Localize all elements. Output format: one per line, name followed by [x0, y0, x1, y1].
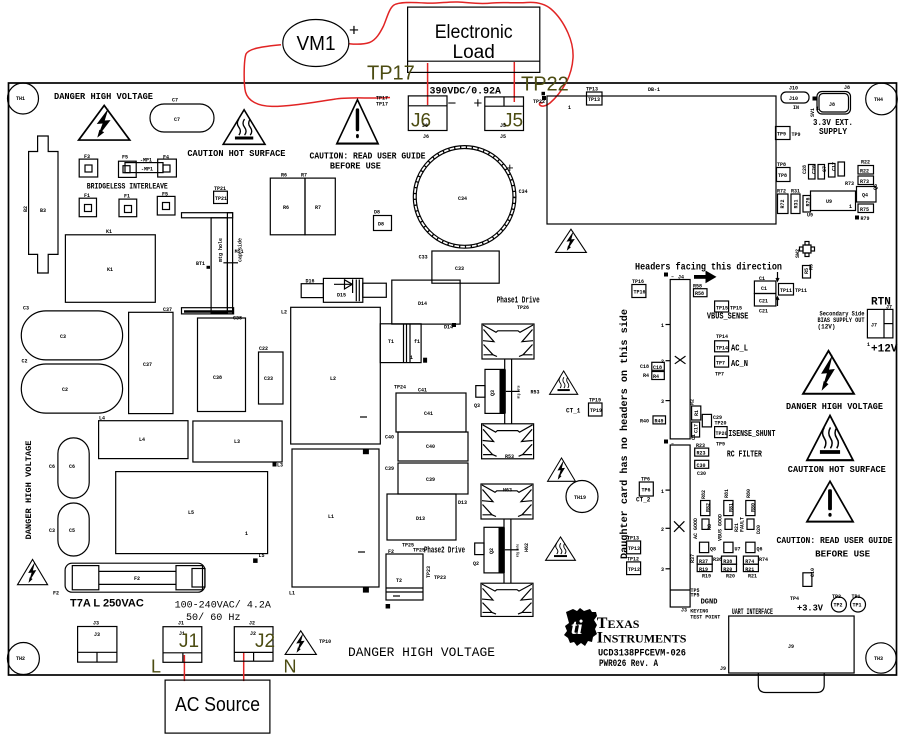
svg-text:F3: F3	[84, 154, 90, 160]
svg-text:J1: J1	[179, 631, 199, 652]
svg-text:R76: R76	[806, 197, 812, 206]
svg-text:R37: R37	[690, 554, 696, 563]
svg-text:ISENSE_SHUNT: ISENSE_SHUNT	[728, 429, 775, 439]
svg-text:C21: C21	[759, 309, 768, 315]
svg-text:J2: J2	[249, 621, 255, 627]
svg-text:C3: C3	[60, 334, 66, 340]
svg-text:Electronic: Electronic	[435, 22, 513, 43]
svg-text:−: −	[448, 95, 457, 112]
svg-text:1: 1	[816, 106, 819, 112]
svg-text:C2: C2	[62, 387, 68, 393]
svg-text:TP17: TP17	[367, 63, 415, 85]
svg-text:TEST POINT: TEST POINT	[690, 615, 720, 621]
svg-text:L5: L5	[259, 553, 265, 559]
svg-text:DANGER HIGH VOLTAGE: DANGER HIGH VOLTAGE	[786, 402, 884, 412]
svg-text:R82: R82	[701, 490, 707, 499]
svg-text:TP11: TP11	[795, 288, 807, 294]
svg-text:TP9: TP9	[777, 132, 786, 138]
svg-text:TH1: TH1	[16, 96, 25, 102]
svg-text:+: +	[506, 160, 514, 175]
svg-text:C7: C7	[822, 166, 828, 172]
svg-text:H62: H62	[524, 543, 530, 552]
svg-text:C5: C5	[69, 528, 75, 534]
svg-text:J10: J10	[789, 96, 798, 102]
svg-text:B2: B2	[23, 206, 29, 212]
svg-text:3: 3	[661, 567, 664, 573]
svg-text:DANGER HIGH VOLTAGE: DANGER HIGH VOLTAGE	[54, 92, 154, 102]
svg-text:AC Source: AC Source	[175, 694, 260, 716]
svg-text:R73: R73	[860, 179, 869, 185]
svg-text:D20: D20	[756, 525, 762, 534]
svg-text:BEFORE USE: BEFORE USE	[815, 550, 871, 560]
svg-text:R80: R80	[751, 503, 757, 512]
svg-text:IN: IN	[793, 105, 799, 111]
svg-text:D8: D8	[374, 210, 380, 216]
svg-text:TP20: TP20	[715, 421, 727, 427]
svg-text:R21: R21	[748, 574, 757, 580]
svg-text:R6: R6	[283, 205, 289, 211]
svg-text:TP13: TP13	[628, 546, 640, 552]
svg-text:D8: D8	[378, 222, 384, 228]
svg-text:-MP1: -MP1	[140, 158, 152, 164]
svg-text:R6: R6	[281, 173, 287, 179]
svg-text:J3: J3	[681, 608, 687, 614]
svg-text:C28: C28	[802, 165, 808, 174]
svg-text:1: 1	[245, 531, 248, 537]
svg-text:TP5: TP5	[691, 593, 700, 599]
svg-text:C33: C33	[419, 255, 428, 261]
svg-text:1: 1	[661, 489, 664, 495]
svg-text:C21: C21	[759, 299, 768, 305]
svg-text:R58: R58	[695, 291, 704, 297]
svg-text:TP9: TP9	[716, 442, 725, 448]
svg-text:C1: C1	[761, 286, 767, 292]
svg-text:+12V: +12V	[871, 344, 898, 356]
svg-text:AC_L: AC_L	[731, 344, 748, 354]
svg-text:F1: F1	[124, 194, 130, 200]
svg-text:TP26: TP26	[517, 305, 529, 311]
svg-text:L1: L1	[289, 591, 295, 597]
svg-text:INSTRUMENTS: INSTRUMENTS	[597, 630, 687, 647]
svg-text:R1: R1	[694, 410, 700, 416]
svg-text:TP17: TP17	[376, 102, 388, 108]
svg-text:T7A L 250VAC: T7A L 250VAC	[70, 598, 144, 610]
svg-text:CT_1: CT_1	[566, 408, 581, 415]
svg-text:J10: J10	[789, 86, 798, 92]
svg-text:C2: C2	[22, 359, 28, 365]
svg-text:J6: J6	[422, 123, 428, 129]
svg-text:50/ 60 Hz: 50/ 60 Hz	[186, 612, 241, 624]
svg-text:TP23: TP23	[434, 575, 446, 581]
svg-text:C37: C37	[163, 307, 172, 313]
svg-text:SW2: SW2	[795, 249, 801, 258]
svg-text:F2: F2	[134, 576, 140, 582]
svg-text:TP10: TP10	[319, 639, 331, 645]
svg-text:BRIDGELESS INTERLEAVE: BRIDGELESS INTERLEAVE	[87, 183, 168, 192]
svg-text:Headers facing this direction: Headers facing this direction	[635, 262, 782, 274]
svg-text:DANGER HIGH VOLTAGE: DANGER HIGH VOLTAGE	[25, 440, 34, 539]
svg-text:J6: J6	[423, 134, 429, 140]
svg-text:C34: C34	[458, 196, 467, 202]
svg-text:Phase2 Drive: Phase2 Drive	[424, 546, 465, 556]
svg-text:J9: J9	[788, 644, 794, 650]
svg-text:BEFORE USE: BEFORE USE	[330, 162, 382, 172]
svg-text:F4: F4	[163, 155, 169, 161]
svg-text:mtg hole: mtg hole	[516, 544, 521, 557]
svg-text:R7: R7	[315, 205, 321, 211]
svg-text:TEXAS: TEXAS	[597, 615, 640, 632]
svg-text:TP12: TP12	[628, 567, 640, 573]
svg-text:C40: C40	[385, 435, 394, 441]
svg-text:(12V): (12V)	[818, 324, 836, 331]
svg-text:Q2: Q2	[473, 561, 479, 567]
svg-text:N: N	[284, 657, 297, 677]
svg-text:C39: C39	[426, 477, 435, 483]
svg-text:CAUTION: READ USER GUIDE: CAUTION: READ USER GUIDE	[310, 152, 427, 162]
svg-text:R74: R74	[759, 557, 768, 563]
svg-text:C6: C6	[49, 464, 55, 470]
svg-text:DANGER HIGH VOLTAGE: DANGER HIGH VOLTAGE	[348, 645, 495, 660]
svg-text:R21: R21	[745, 567, 754, 573]
svg-text:R81: R81	[729, 503, 735, 512]
svg-text:U9: U9	[807, 213, 813, 219]
svg-text:R23: R23	[697, 451, 706, 457]
svg-text:R40: R40	[640, 419, 649, 425]
svg-text:-MP1: -MP1	[141, 167, 153, 173]
svg-text:R72: R72	[780, 199, 786, 208]
svg-text:CAUTION: READ USER GUIDE: CAUTION: READ USER GUIDE	[777, 536, 894, 546]
svg-text:C10: C10	[810, 568, 816, 577]
svg-text:D14: D14	[418, 301, 427, 307]
svg-text:L1: L1	[328, 514, 334, 520]
svg-text:D16: D16	[306, 279, 315, 285]
svg-text:J3: J3	[93, 621, 99, 627]
svg-text:R22: R22	[861, 160, 870, 166]
svg-text:R80: R80	[746, 489, 752, 498]
svg-text:R73: R73	[845, 181, 854, 187]
svg-text:C22: C22	[259, 346, 268, 352]
svg-text:L2: L2	[281, 310, 287, 316]
svg-text:K1: K1	[106, 229, 112, 235]
svg-text:D15: D15	[337, 293, 346, 299]
svg-text:C40: C40	[426, 444, 435, 450]
svg-text:Q4: Q4	[862, 193, 868, 199]
svg-text:K1: K1	[107, 267, 113, 273]
svg-text:R22: R22	[860, 169, 869, 175]
svg-text:TP14: TP14	[716, 346, 728, 352]
svg-text:J5: J5	[500, 134, 506, 140]
svg-text:C38: C38	[213, 375, 222, 381]
svg-text:L4: L4	[139, 437, 145, 443]
svg-text:RC FILTER: RC FILTER	[727, 450, 762, 460]
svg-text:TP4: TP4	[790, 596, 799, 602]
svg-text:T2: T2	[396, 578, 402, 584]
svg-text:TP19: TP19	[590, 408, 602, 414]
svg-text:+: +	[474, 95, 483, 112]
svg-text:f1: f1	[414, 339, 420, 345]
svg-text:Q3: Q3	[474, 403, 480, 409]
svg-text:R8: R8	[707, 524, 713, 530]
svg-text:1: 1	[661, 323, 664, 329]
svg-text:100-240VAC/ 4.2A: 100-240VAC/ 4.2A	[175, 600, 271, 612]
svg-text:1: 1	[410, 355, 413, 361]
svg-text:L: L	[151, 657, 161, 677]
svg-text:F5: F5	[162, 192, 168, 198]
svg-text:R36: R36	[713, 557, 722, 563]
svg-text:L5: L5	[188, 510, 194, 516]
svg-text:D13: D13	[416, 516, 425, 522]
svg-text:R7: R7	[301, 173, 307, 179]
svg-text:C1: C1	[691, 434, 697, 440]
svg-text:UCD3138PFCEVM-026: UCD3138PFCEVM-026	[598, 649, 686, 660]
svg-text:cap side: cap side	[238, 238, 244, 262]
svg-text:U9: U9	[826, 199, 832, 205]
svg-text:J3: J3	[94, 632, 100, 638]
svg-text:F5: F5	[122, 155, 128, 161]
svg-text:TP1: TP1	[853, 603, 862, 609]
svg-text:Q3: Q3	[490, 390, 496, 396]
svg-text:Q2: Q2	[489, 548, 495, 554]
svg-text:R53: R53	[505, 454, 514, 460]
svg-text:R75: R75	[860, 207, 869, 213]
svg-text:1: 1	[568, 105, 571, 111]
svg-text:+3.3V: +3.3V	[797, 604, 824, 614]
svg-text:Q5: Q5	[873, 184, 879, 190]
svg-text:L3: L3	[277, 463, 283, 469]
svg-text:Phase1 Drive: Phase1 Drive	[497, 296, 540, 306]
svg-text:C3: C3	[49, 528, 55, 534]
svg-text:C26: C26	[812, 165, 818, 174]
svg-text:R4: R4	[643, 373, 649, 379]
svg-text:TP2: TP2	[834, 603, 843, 609]
svg-text:R79: R79	[861, 216, 870, 222]
svg-text:R82: R82	[706, 503, 712, 512]
svg-text:VBUS_SENSE: VBUS_SENSE	[707, 312, 749, 322]
svg-text:TH19: TH19	[574, 495, 586, 501]
svg-text:TP23: TP23	[426, 566, 432, 578]
svg-text:R4: R4	[653, 374, 659, 380]
svg-text:C30: C30	[697, 471, 706, 477]
svg-text:SUPPLY: SUPPLY	[819, 127, 848, 137]
svg-text:TP14: TP14	[716, 334, 728, 340]
svg-text:F2: F2	[53, 591, 59, 597]
svg-text:J8: J8	[829, 102, 835, 108]
svg-text:TP6: TP6	[642, 488, 651, 494]
svg-text:D14: D14	[444, 325, 453, 331]
svg-text:TP24: TP24	[394, 385, 406, 391]
svg-text:Q8: Q8	[710, 547, 716, 553]
svg-text:D13: D13	[458, 500, 467, 506]
svg-text:C33: C33	[455, 266, 464, 272]
svg-text:B3: B3	[40, 208, 46, 214]
svg-text:R2: R2	[690, 399, 696, 405]
svg-text:AC_N: AC_N	[731, 359, 748, 369]
svg-text:C41: C41	[424, 411, 433, 417]
svg-text:R19: R19	[702, 574, 711, 580]
svg-text:L2: L2	[330, 376, 336, 382]
svg-text:TH3: TH3	[874, 656, 883, 662]
svg-text:TH4: TH4	[874, 97, 883, 103]
svg-text:Daughter card has no headers o: Daughter card has no headers on this sid…	[619, 309, 631, 559]
svg-text:CT_2: CT_2	[636, 497, 651, 504]
svg-text:F1: F1	[84, 193, 90, 199]
svg-text:C17: C17	[832, 162, 838, 171]
svg-text:J5: J5	[500, 123, 506, 129]
svg-text:J8: J8	[844, 85, 850, 91]
svg-text:ti: ti	[571, 615, 583, 639]
svg-text:TP11: TP11	[780, 288, 792, 294]
svg-text:J9: J9	[720, 666, 726, 672]
svg-text:C37: C37	[143, 362, 152, 368]
svg-text:mtg hole: mtg hole	[517, 385, 522, 398]
svg-text:C7: C7	[172, 98, 178, 104]
svg-text:C18: C18	[653, 365, 662, 371]
svg-text:U7: U7	[735, 547, 741, 553]
svg-text:TP7: TP7	[716, 361, 725, 367]
svg-text:VM1: VM1	[297, 33, 336, 55]
svg-text:H63: H63	[503, 488, 512, 494]
svg-text:DGND: DGND	[701, 599, 718, 607]
svg-text:C3: C3	[23, 306, 29, 312]
svg-text:Q6: Q6	[757, 547, 763, 553]
svg-text:J2: J2	[255, 631, 275, 652]
svg-text:R20: R20	[726, 574, 735, 580]
svg-text:C39: C39	[385, 466, 394, 472]
svg-text:TP16: TP16	[634, 290, 646, 296]
svg-text:–: –	[671, 441, 674, 447]
svg-text:C18: C18	[640, 364, 649, 370]
svg-text:R19: R19	[699, 567, 708, 573]
svg-text:TP13: TP13	[588, 97, 600, 103]
svg-text:C7: C7	[174, 117, 180, 123]
svg-text:+: +	[349, 21, 359, 40]
svg-text:R81: R81	[724, 489, 730, 498]
svg-text:PWR026 Rev. A: PWR026 Rev. A	[599, 659, 658, 670]
svg-text:C33: C33	[264, 376, 273, 382]
svg-text:1: 1	[867, 342, 870, 348]
svg-text:R5: R5	[804, 268, 810, 274]
svg-text:C38: C38	[233, 316, 242, 322]
svg-text:C41: C41	[418, 388, 427, 394]
svg-text:FAULT: FAULT	[740, 517, 746, 532]
svg-text:Load: Load	[453, 42, 495, 63]
svg-text:TP8: TP8	[778, 173, 787, 179]
svg-text:C6: C6	[69, 464, 75, 470]
svg-text:R49: R49	[655, 419, 664, 425]
svg-text:R20: R20	[723, 567, 732, 573]
svg-text:2: 2	[661, 527, 664, 533]
svg-text:TP21: TP21	[215, 196, 227, 202]
svg-text:TP9: TP9	[792, 132, 801, 138]
svg-text:R53: R53	[531, 390, 540, 396]
svg-text:1: 1	[849, 204, 852, 210]
svg-text:L3: L3	[234, 439, 240, 445]
svg-text:mtg hole: mtg hole	[218, 238, 224, 262]
svg-text:DB-1: DB-1	[648, 87, 660, 93]
svg-text:TP7: TP7	[715, 372, 724, 378]
svg-text:C34: C34	[519, 189, 528, 195]
svg-text:BT1: BT1	[196, 261, 205, 267]
svg-text:VBUS GOOD: VBUS GOOD	[718, 514, 724, 541]
svg-text:L4: L4	[99, 416, 105, 422]
svg-text:TH2: TH2	[16, 656, 25, 662]
svg-text:T1: T1	[388, 339, 394, 345]
svg-text:J7: J7	[871, 323, 877, 329]
svg-text:TP20: TP20	[716, 431, 728, 437]
svg-text:CAUTION HOT SURFACE: CAUTION HOT SURFACE	[187, 149, 286, 159]
svg-text:AC GOOD: AC GOOD	[693, 518, 699, 539]
svg-text:C30: C30	[697, 463, 706, 469]
svg-text:R31: R31	[794, 199, 800, 208]
svg-text:C17: C17	[694, 424, 700, 433]
svg-text:CAUTION HOT SURFACE: CAUTION HOT SURFACE	[788, 465, 887, 475]
svg-text:J1: J1	[178, 621, 184, 627]
svg-text:3: 3	[661, 399, 664, 405]
